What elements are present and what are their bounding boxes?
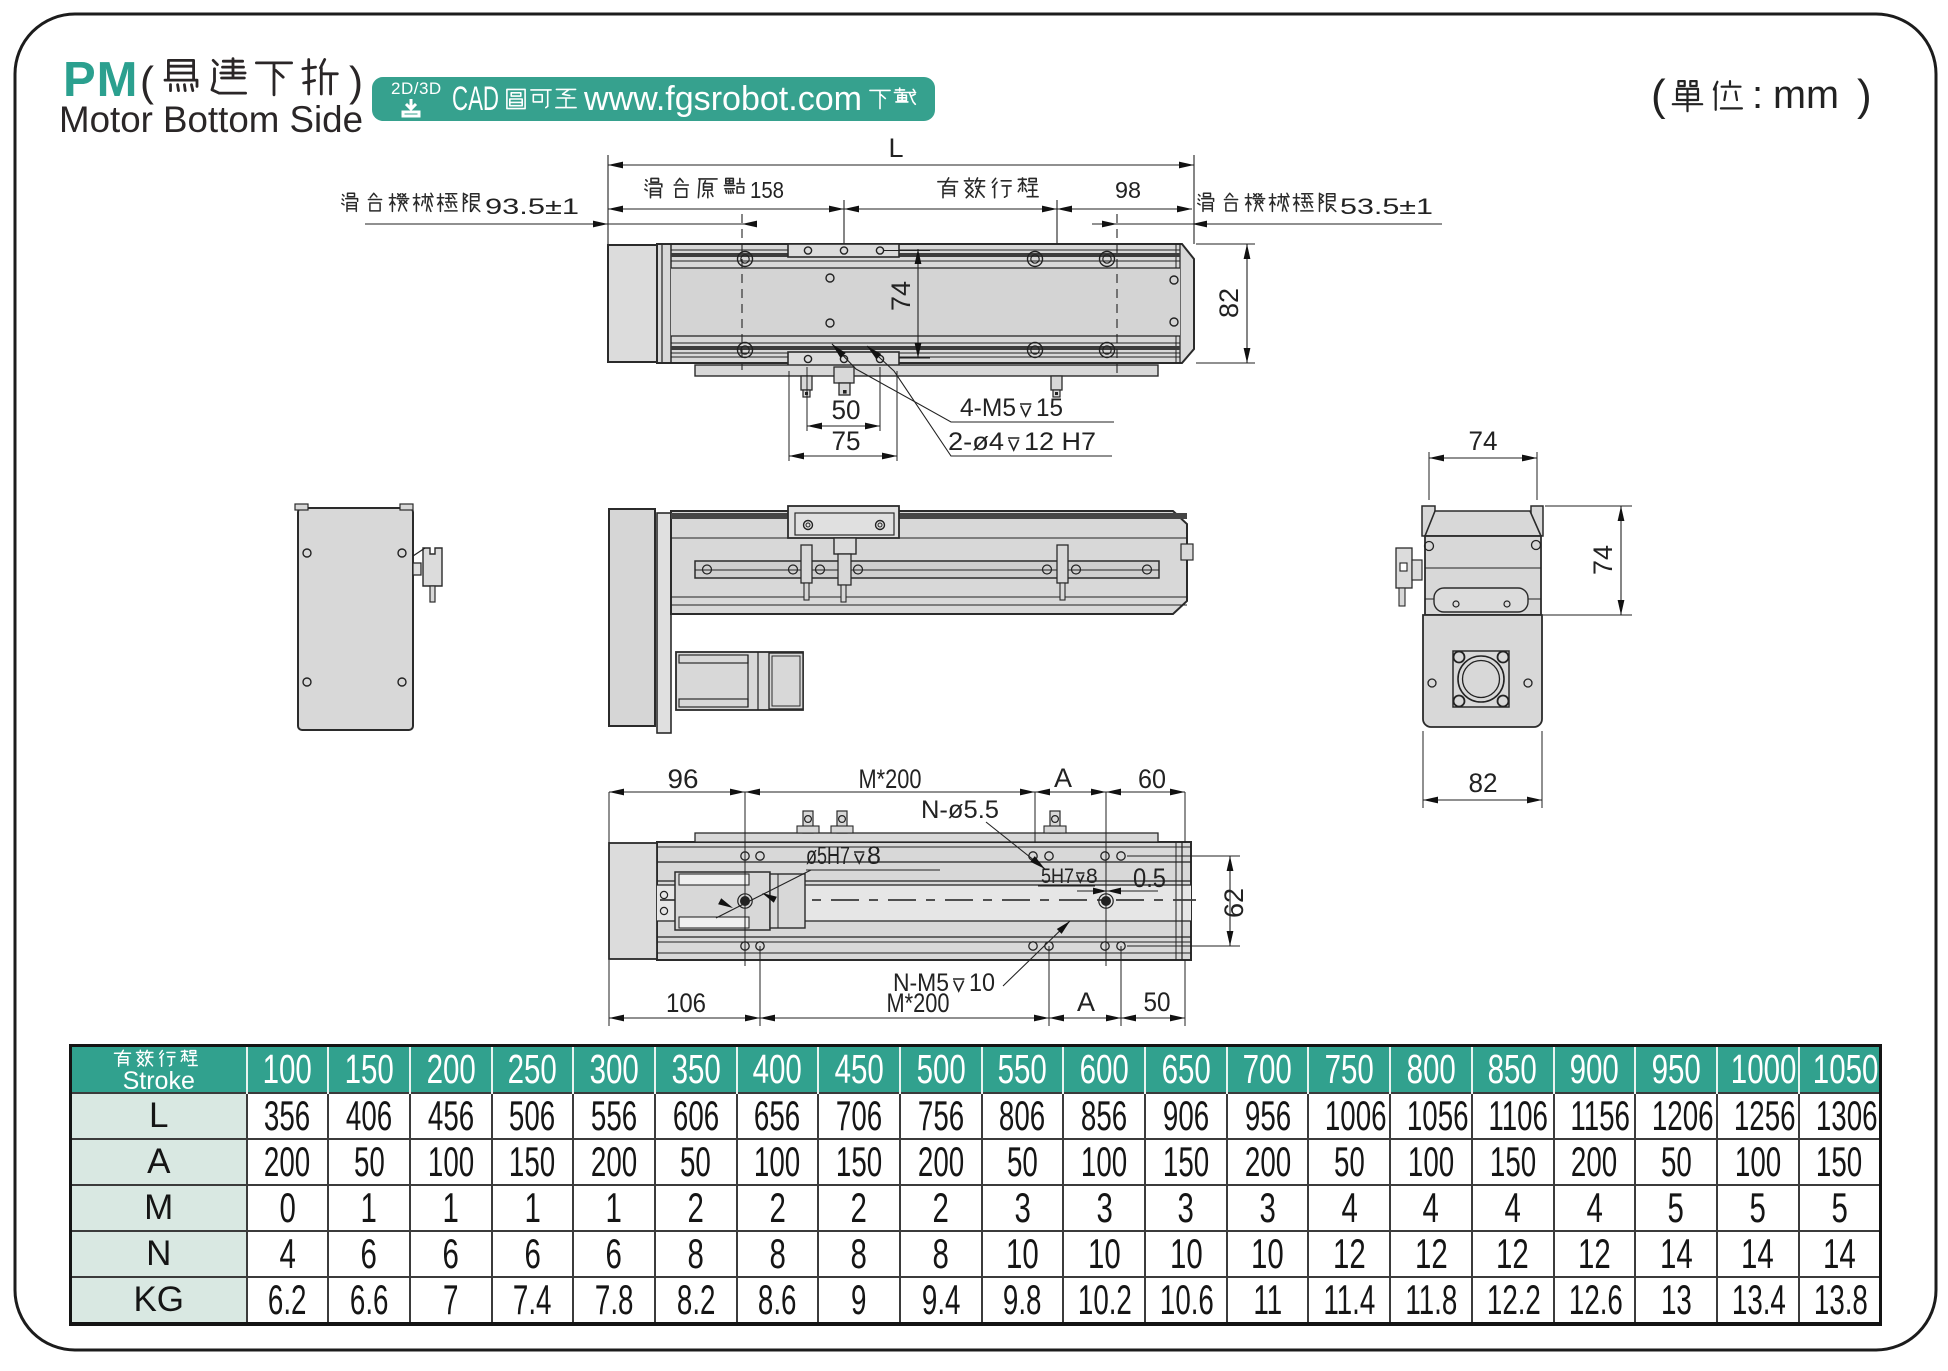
svg-text:8: 8 xyxy=(1086,865,1098,888)
svg-text:2D/3D: 2D/3D xyxy=(391,79,442,98)
svg-text:158: 158 xyxy=(750,177,784,203)
svg-text:10: 10 xyxy=(969,969,995,997)
svg-text:2-ø4: 2-ø4 xyxy=(948,428,1004,456)
svg-text:ø5H7: ø5H7 xyxy=(806,842,850,870)
svg-text:15: 15 xyxy=(1036,394,1063,422)
svg-text:8: 8 xyxy=(867,842,881,870)
svg-text:96: 96 xyxy=(668,764,699,794)
svg-text:74: 74 xyxy=(1588,545,1618,575)
svg-text:60: 60 xyxy=(1138,764,1166,794)
svg-text:N-ø5.5: N-ø5.5 xyxy=(921,796,999,824)
svg-text:50: 50 xyxy=(1144,987,1171,1017)
svg-text:62: 62 xyxy=(1219,888,1249,918)
svg-text:50: 50 xyxy=(832,395,861,425)
svg-text:93.5±1: 93.5±1 xyxy=(485,194,579,219)
svg-text:M*200: M*200 xyxy=(859,764,922,794)
svg-text:98: 98 xyxy=(1115,177,1141,203)
svg-text:74: 74 xyxy=(1469,426,1498,456)
svg-text:82: 82 xyxy=(1469,768,1498,798)
svg-text:CAD: CAD xyxy=(452,80,499,118)
svg-text:L: L xyxy=(888,133,903,163)
svg-text:mm: mm xyxy=(1773,73,1839,117)
svg-text:A: A xyxy=(1077,987,1095,1017)
svg-text:5H7: 5H7 xyxy=(1041,865,1074,888)
svg-text:75: 75 xyxy=(832,426,861,456)
svg-text:74: 74 xyxy=(886,281,916,311)
svg-text:Motor Bottom Side: Motor Bottom Side xyxy=(59,99,363,140)
svg-text:): ) xyxy=(1857,71,1872,120)
svg-text:12 H7: 12 H7 xyxy=(1024,428,1096,456)
svg-text:): ) xyxy=(349,58,363,105)
svg-text:0.5: 0.5 xyxy=(1133,863,1166,893)
svg-text:(: ( xyxy=(140,58,154,105)
svg-text:N-M5: N-M5 xyxy=(893,969,949,997)
svg-text:106: 106 xyxy=(666,988,706,1018)
svg-text:53.5±1: 53.5±1 xyxy=(1340,194,1433,219)
svg-text:82: 82 xyxy=(1214,288,1244,318)
svg-text:www.fgsrobot.com: www.fgsrobot.com xyxy=(583,80,862,118)
svg-text::: : xyxy=(1752,73,1763,117)
svg-text:4-M5: 4-M5 xyxy=(960,394,1016,422)
svg-text:A: A xyxy=(1054,763,1072,793)
svg-text:(: ( xyxy=(1651,71,1666,120)
